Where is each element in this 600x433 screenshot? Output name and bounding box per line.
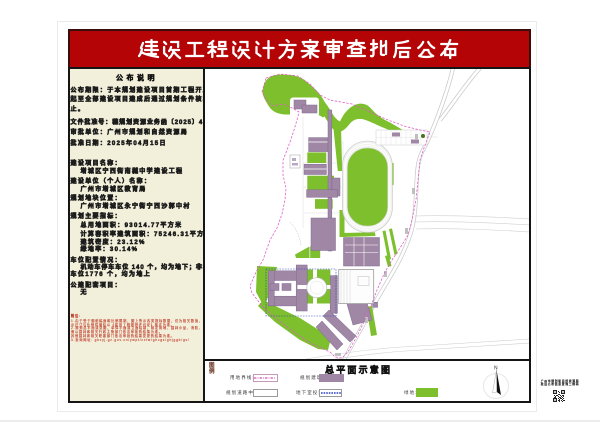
svg-text:N: N [494,366,498,372]
